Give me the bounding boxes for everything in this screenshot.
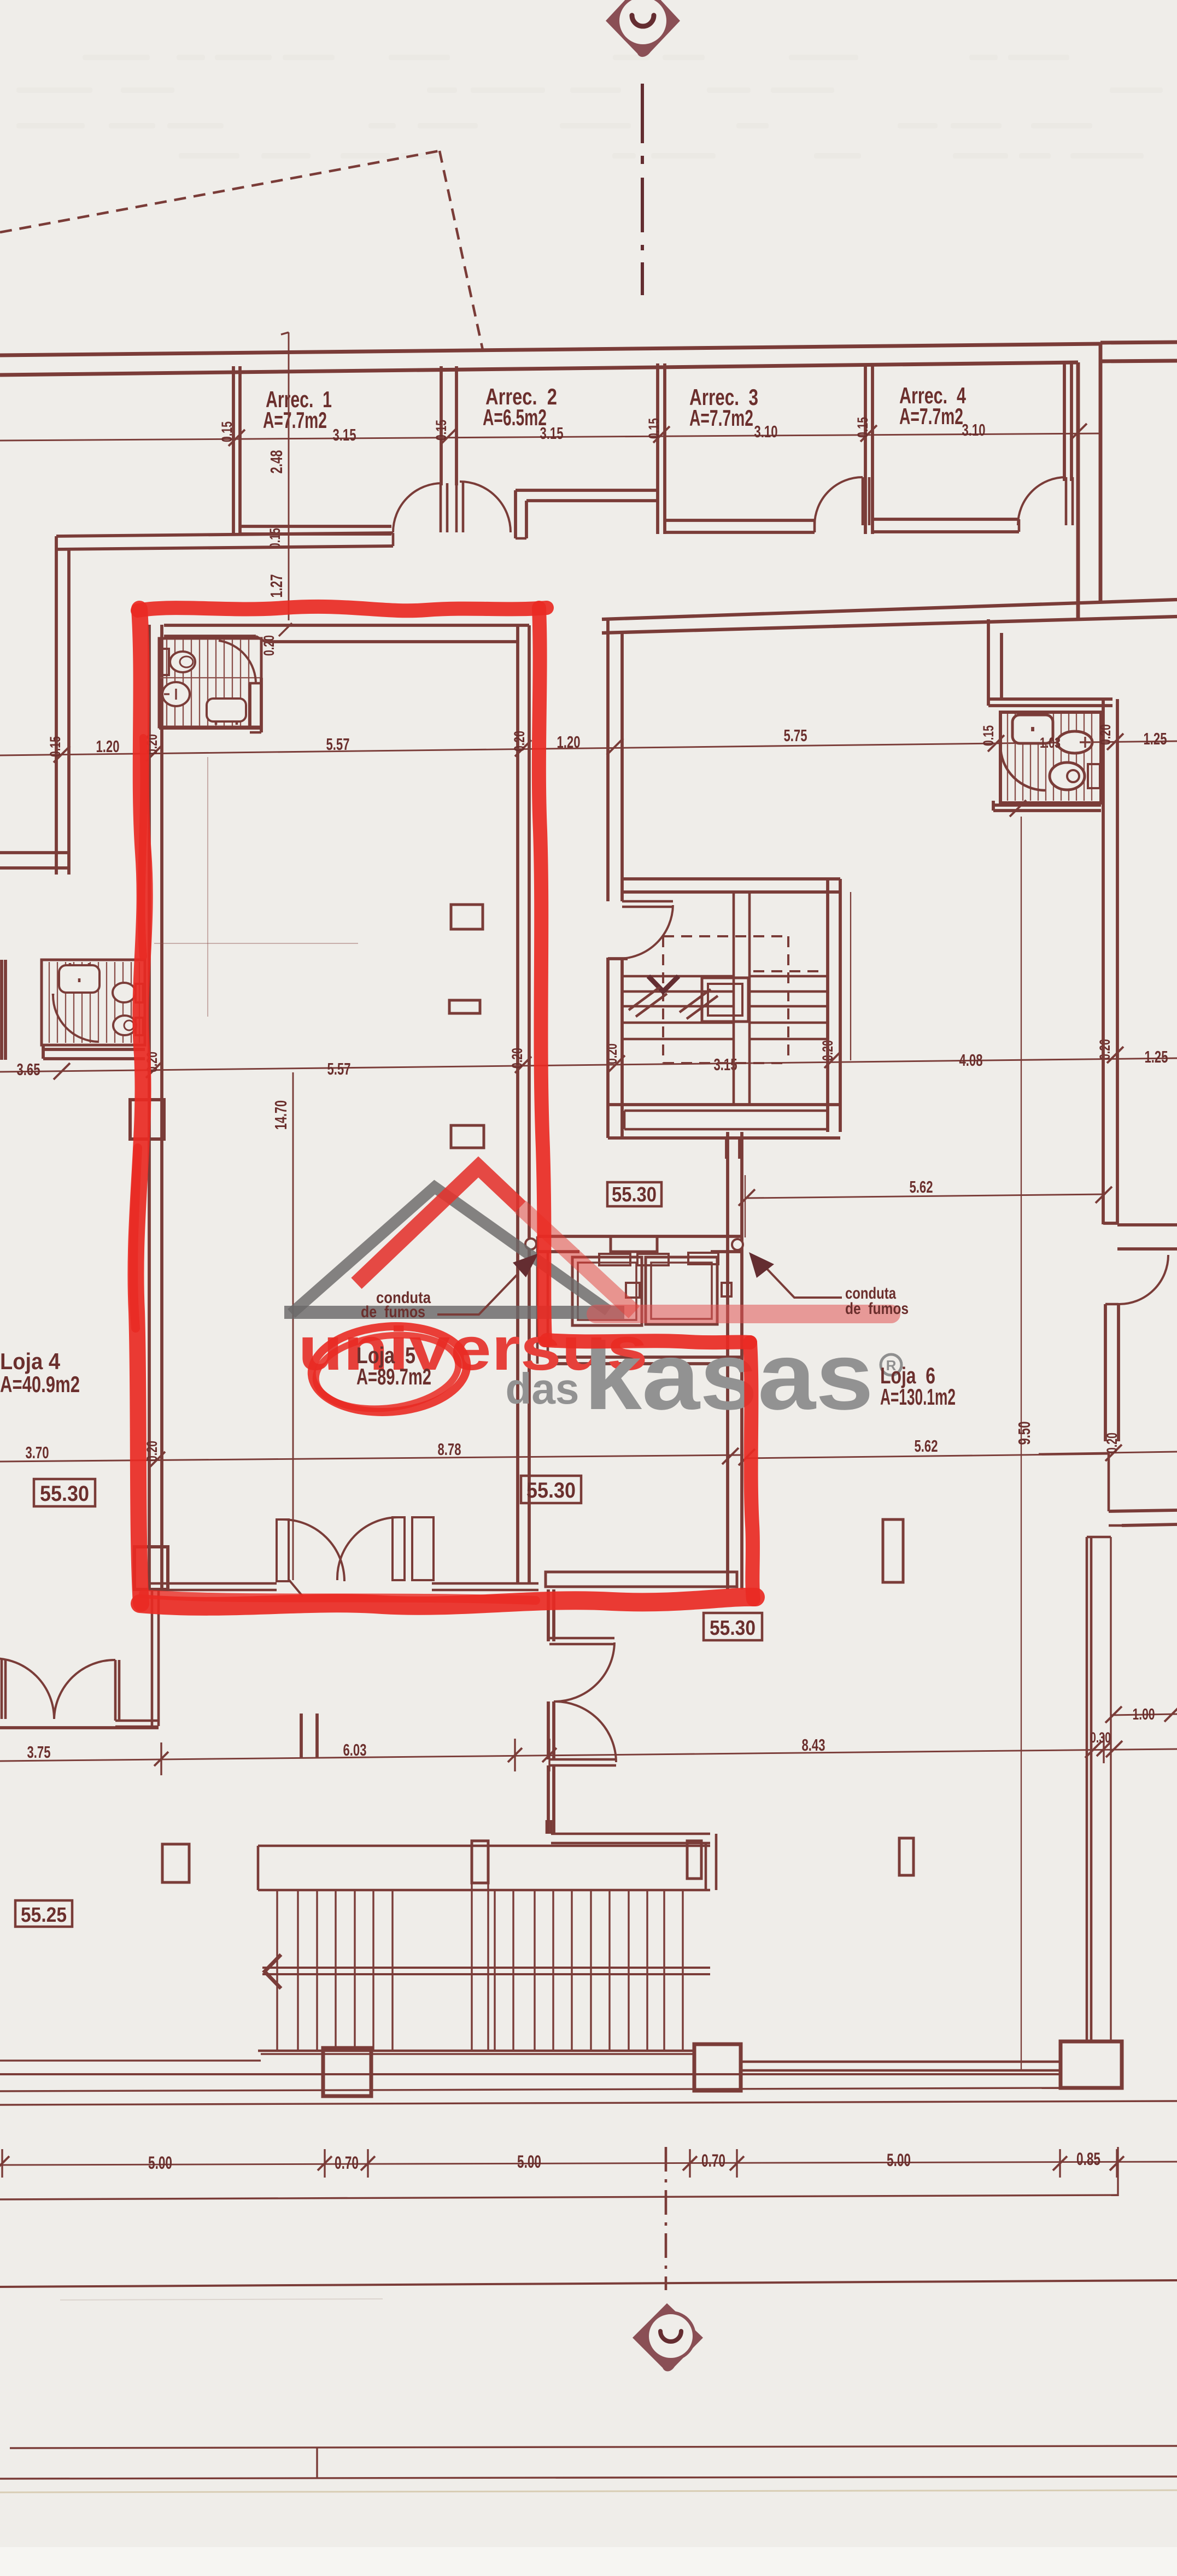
svg-text:A=7.7m2: A=7.7m2 (689, 405, 753, 431)
svg-text:0.20: 0.20 (509, 1048, 525, 1069)
svg-text:8.78: 8.78 (438, 1440, 461, 1459)
svg-text:0.15: 0.15 (433, 420, 449, 441)
svg-text:de fumos: de fumos (361, 1303, 425, 1321)
svg-text:1.25: 1.25 (1145, 1047, 1168, 1066)
svg-text:A=7.7m2: A=7.7m2 (263, 407, 327, 433)
svg-text:0.15: 0.15 (854, 417, 871, 438)
svg-text:55.30: 55.30 (710, 1617, 756, 1640)
svg-text:0.70: 0.70 (335, 2153, 359, 2173)
svg-text:3.10: 3.10 (754, 422, 778, 441)
svg-text:0.20: 0.20 (1097, 724, 1114, 745)
svg-text:9.50: 9.50 (1015, 1422, 1034, 1445)
svg-text:0.30: 0.30 (1090, 1729, 1111, 1746)
svg-text:1.03: 1.03 (1040, 735, 1061, 751)
svg-text:5.62: 5.62 (910, 1177, 933, 1196)
svg-text:8.43: 8.43 (802, 1735, 825, 1755)
svg-text:3.75: 3.75 (27, 1742, 51, 1762)
svg-text:2.48: 2.48 (267, 450, 286, 474)
svg-text:55.30: 55.30 (40, 1482, 89, 1506)
svg-text:55.30: 55.30 (526, 1478, 576, 1503)
svg-text:0.20: 0.20 (1104, 1433, 1120, 1453)
svg-text:6.03: 6.03 (343, 1740, 367, 1759)
svg-text:1.25: 1.25 (1144, 729, 1167, 748)
svg-text:55.30: 55.30 (612, 1183, 657, 1206)
svg-text:5.57: 5.57 (326, 735, 350, 754)
svg-text:3.65: 3.65 (17, 1060, 40, 1079)
svg-text:5.00: 5.00 (148, 2153, 172, 2173)
svg-text:3.10: 3.10 (962, 420, 986, 439)
svg-text:0.15: 0.15 (47, 736, 63, 757)
svg-text:0.15: 0.15 (219, 421, 235, 442)
svg-text:5.00: 5.00 (517, 2152, 541, 2172)
svg-text:0.20: 0.20 (261, 635, 277, 656)
svg-text:5.75: 5.75 (784, 726, 807, 745)
svg-text:A=40.9m2: A=40.9m2 (0, 1371, 80, 1397)
svg-text:3.15: 3.15 (333, 425, 356, 444)
svg-text:1.20: 1.20 (96, 737, 120, 756)
svg-text:Loja 4: Loja 4 (0, 1348, 61, 1374)
svg-text:0.20: 0.20 (511, 731, 528, 752)
svg-text:5.00: 5.00 (887, 2150, 911, 2170)
svg-text:5.62: 5.62 (915, 1436, 938, 1456)
svg-text:A=89.7m2: A=89.7m2 (356, 1364, 431, 1389)
svg-text:A=130.1m2: A=130.1m2 (880, 1384, 956, 1410)
svg-text:3.70: 3.70 (26, 1443, 49, 1462)
svg-text:4.08: 4.08 (959, 1051, 983, 1070)
svg-text:14.70: 14.70 (271, 1100, 290, 1130)
svg-text:0.85: 0.85 (1076, 2149, 1100, 2169)
svg-text:das: das (506, 1364, 579, 1413)
svg-text:0.15: 0.15 (980, 725, 997, 746)
svg-text:3.15: 3.15 (540, 424, 564, 443)
svg-text:5.57: 5.57 (327, 1059, 351, 1078)
svg-text:0.15: 0.15 (646, 418, 662, 439)
svg-text:A=6.5m2: A=6.5m2 (483, 404, 547, 430)
svg-text:0.20: 0.20 (604, 1043, 620, 1064)
svg-text:1.00: 1.00 (1133, 1706, 1155, 1723)
svg-text:de fumos: de fumos (845, 1300, 909, 1318)
svg-text:1.27: 1.27 (267, 574, 286, 598)
svg-text:0.20: 0.20 (1097, 1039, 1113, 1060)
svg-text:0.70: 0.70 (701, 2151, 725, 2170)
svg-text:1.20: 1.20 (557, 732, 581, 752)
svg-text:A=7.7m2: A=7.7m2 (899, 403, 963, 429)
svg-text:55.25: 55.25 (21, 1904, 67, 1927)
